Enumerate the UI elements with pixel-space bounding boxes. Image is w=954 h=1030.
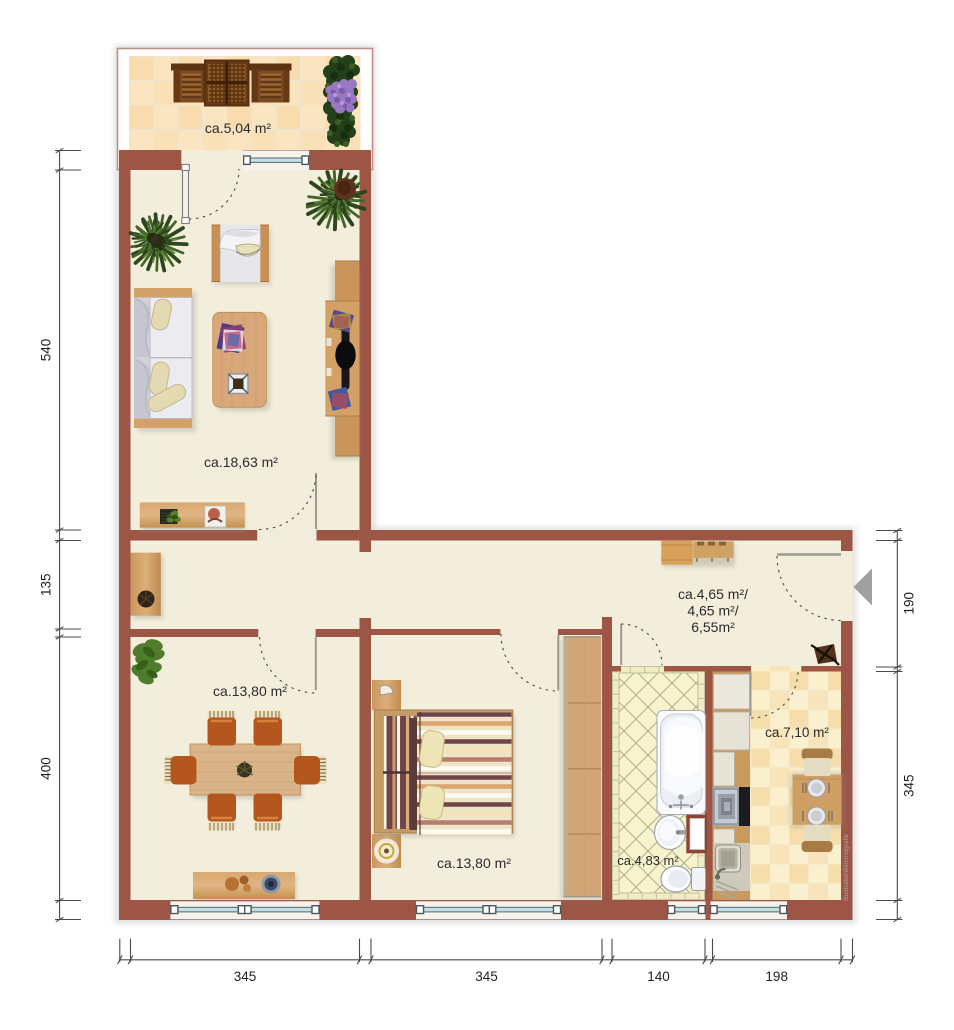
svg-text:198: 198 xyxy=(765,969,788,984)
svg-text:ca.13,80 m²: ca.13,80 m² xyxy=(213,683,287,699)
svg-text:6,55m²: 6,55m² xyxy=(691,619,735,635)
svg-text:ca.18,63 m²: ca.18,63 m² xyxy=(204,454,278,470)
svg-text:190: 190 xyxy=(902,592,917,615)
svg-text:4,65 m²/: 4,65 m²/ xyxy=(687,603,738,619)
svg-text:ca.13,80 m²: ca.13,80 m² xyxy=(437,855,511,871)
svg-text:345: 345 xyxy=(475,969,498,984)
svg-text:ca.4,83 m²: ca.4,83 m² xyxy=(617,853,679,868)
svg-text:ca.4,65 m²/: ca.4,65 m²/ xyxy=(678,586,748,602)
svg-text:Illustration©immografik: Illustration©immografik xyxy=(842,833,850,901)
svg-text:140: 140 xyxy=(647,969,670,984)
svg-text:540: 540 xyxy=(39,339,54,362)
svg-text:135: 135 xyxy=(39,573,54,596)
svg-text:345: 345 xyxy=(902,774,917,797)
svg-text:345: 345 xyxy=(234,969,257,984)
svg-text:ca.7,10 m²: ca.7,10 m² xyxy=(765,725,829,740)
svg-text:400: 400 xyxy=(39,757,54,780)
svg-text:ca.5,04 m²: ca.5,04 m² xyxy=(205,120,271,136)
